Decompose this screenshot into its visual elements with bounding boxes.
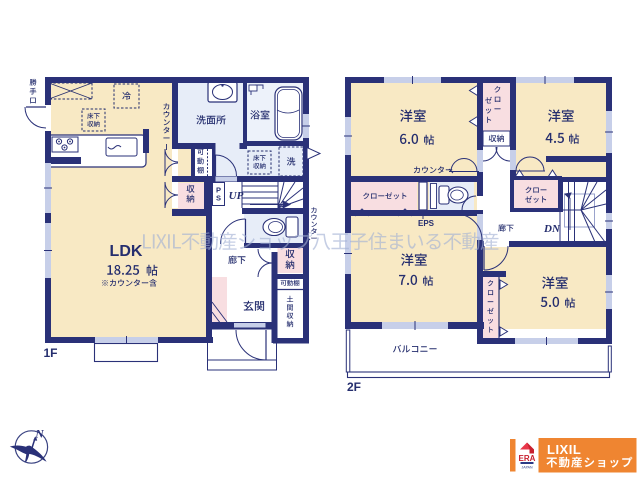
svg-text:N: N — [34, 429, 44, 441]
svg-text:S: S — [216, 194, 221, 203]
svg-text:UP: UP — [229, 190, 244, 202]
svg-text:EPS: EPS — [418, 219, 435, 228]
svg-text:LDK: LDK — [110, 243, 143, 260]
svg-text:ERA: ERA — [519, 454, 536, 463]
svg-text:JAPAN: JAPAN — [521, 466, 532, 470]
svg-text:2F: 2F — [347, 380, 361, 394]
svg-text:DN: DN — [543, 223, 561, 235]
svg-text:LIXIL: LIXIL — [547, 442, 581, 457]
svg-text:1F: 1F — [43, 346, 57, 360]
